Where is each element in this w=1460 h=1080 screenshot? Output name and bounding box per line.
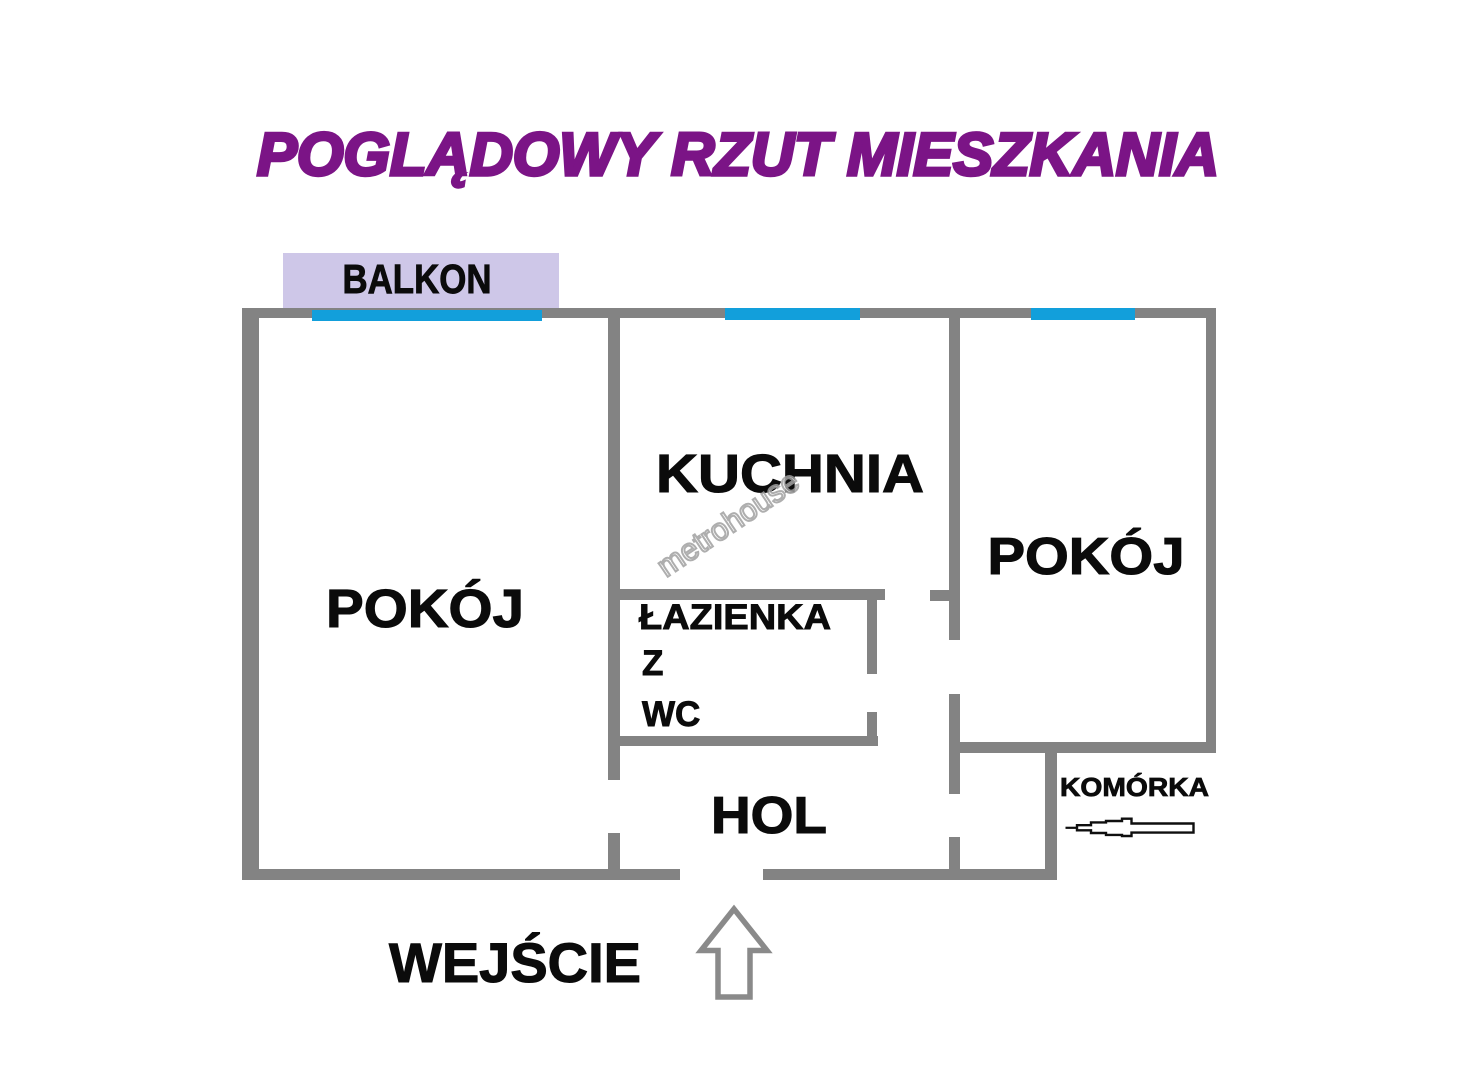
svg-text:WEJŚCIE: WEJŚCIE	[389, 931, 641, 994]
svg-text:KOMÓRKA: KOMÓRKA	[1060, 772, 1209, 802]
svg-text:Z: Z	[642, 644, 663, 683]
svg-text:POKÓJ: POKÓJ	[326, 579, 524, 639]
svg-text:POGLĄDOWY RZUT MIESZKANIA: POGLĄDOWY RZUT MIESZKANIA	[257, 121, 1219, 188]
svg-text:ŁAZIENKA: ŁAZIENKA	[639, 598, 831, 637]
svg-text:WC: WC	[642, 695, 700, 734]
svg-text:BALKON: BALKON	[343, 256, 492, 302]
svg-text:HOL: HOL	[711, 787, 827, 845]
svg-text:POKÓJ: POKÓJ	[988, 528, 1185, 586]
